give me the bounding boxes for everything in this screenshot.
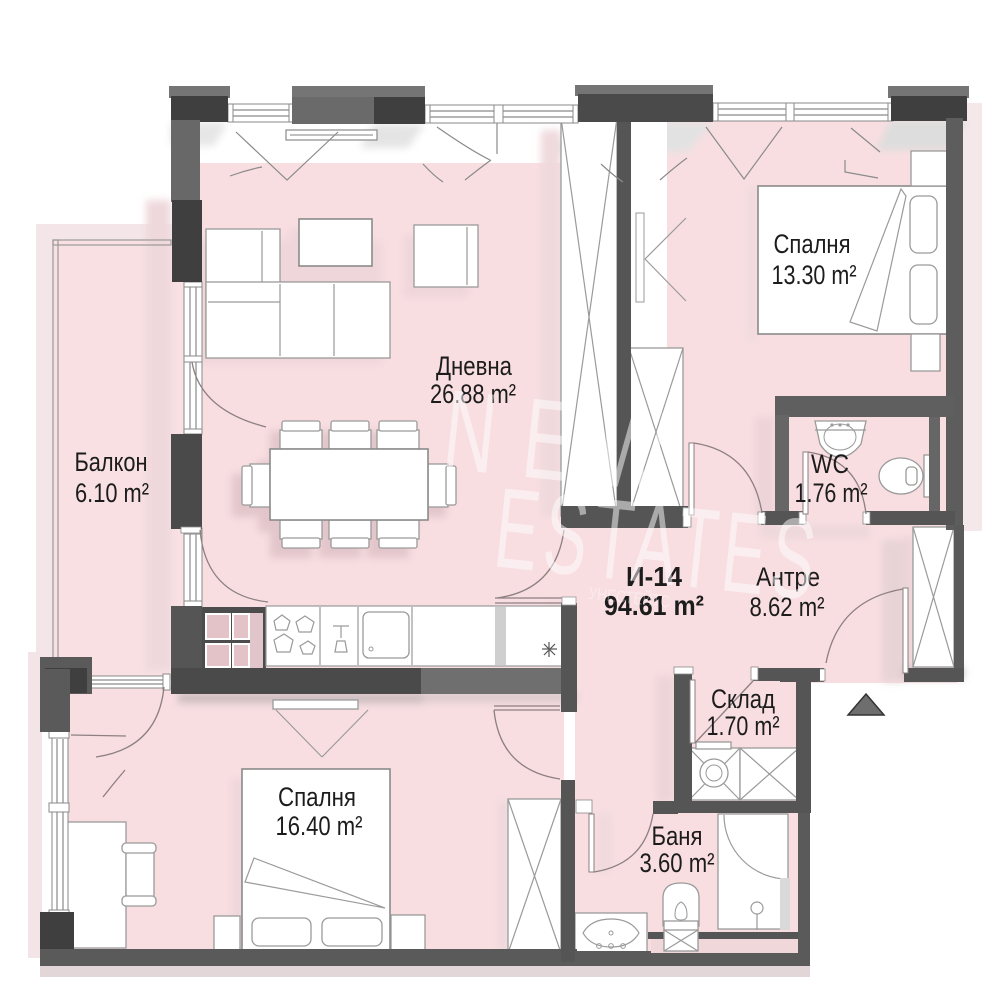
svg-text:Баня: Баня — [652, 821, 703, 851]
svg-text:16.40 m²: 16.40 m² — [276, 811, 363, 841]
svg-text:Склад: Склад — [711, 684, 775, 714]
svg-text:Спалня: Спалня — [774, 229, 851, 259]
svg-text:3.60 m²: 3.60 m² — [640, 848, 715, 878]
svg-text:1.70 m²: 1.70 m² — [707, 711, 780, 741]
svg-text:13.30 m²: 13.30 m² — [772, 260, 857, 290]
svg-text:6.10 m²: 6.10 m² — [75, 478, 149, 508]
svg-text:Спалня: Спалня — [278, 782, 356, 812]
svg-text:WC: WC — [811, 449, 849, 479]
svg-text:Балкон: Балкон — [75, 447, 148, 477]
